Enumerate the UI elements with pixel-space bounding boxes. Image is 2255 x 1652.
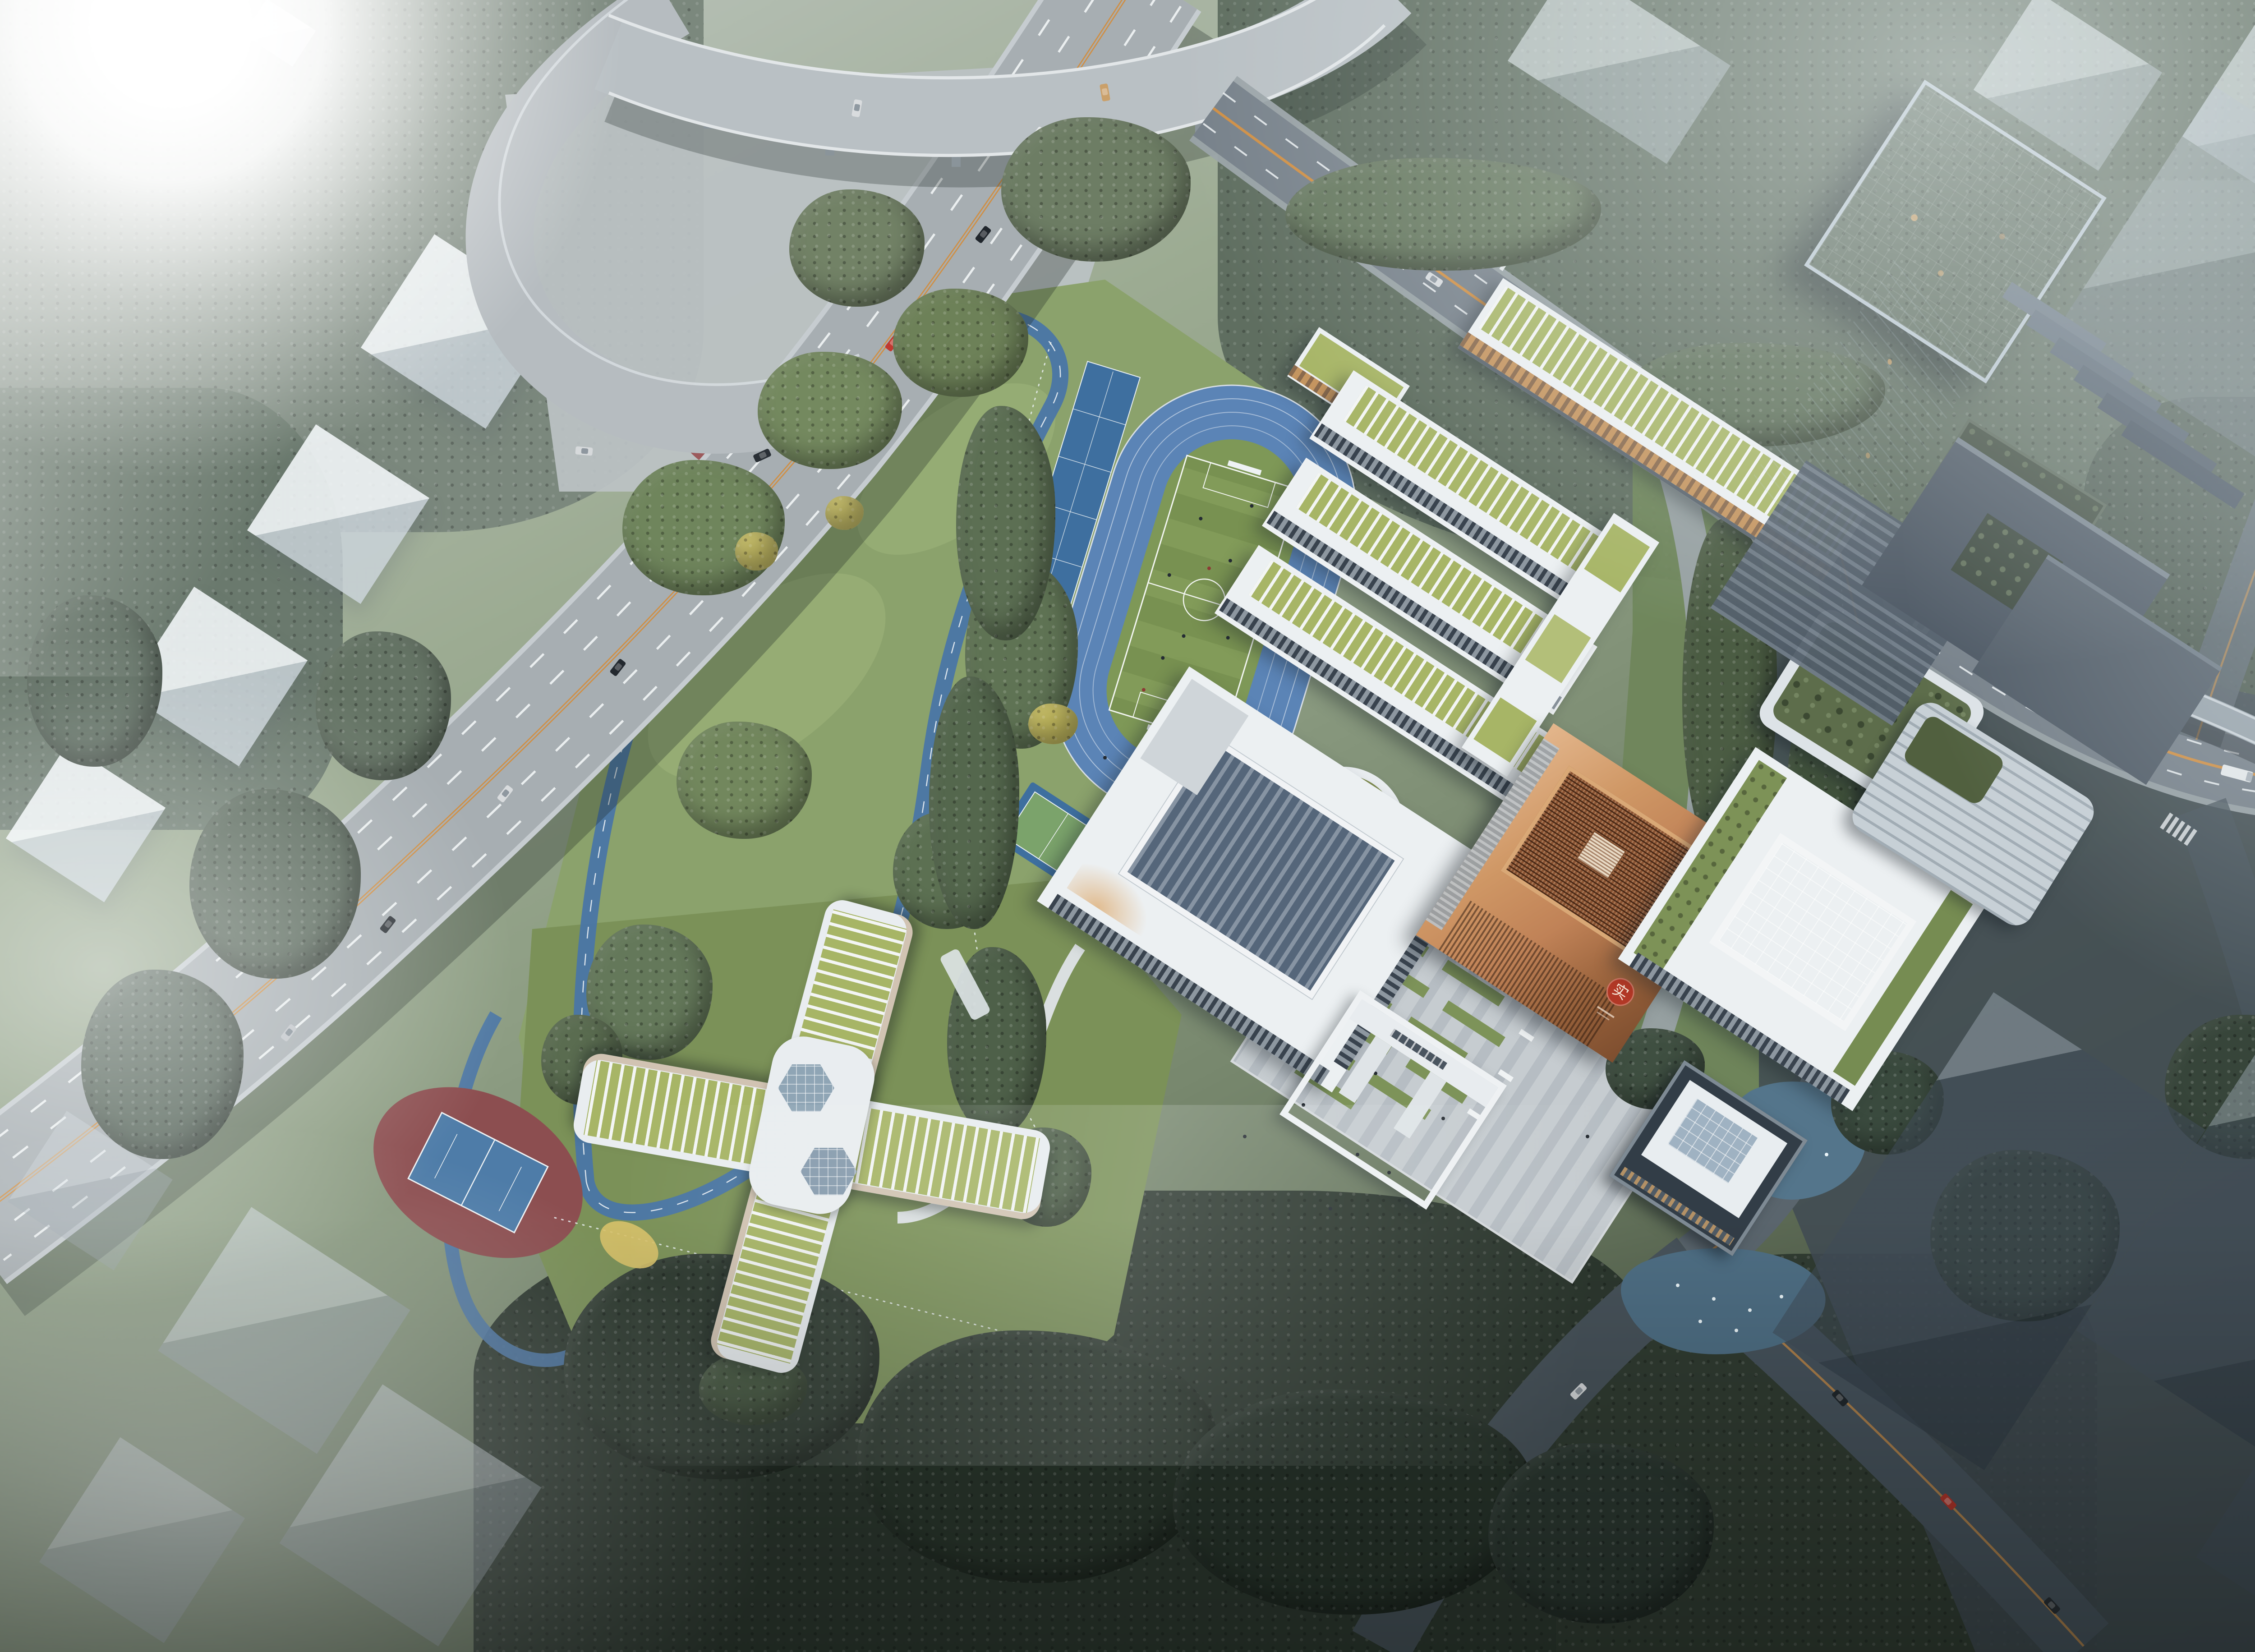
kindergarten-center — [743, 1031, 880, 1220]
aerial-render-stage: 实 — [0, 0, 2255, 1652]
road-east-branch — [2196, 0, 2255, 740]
kindergarten-x-building — [566, 891, 1058, 1387]
